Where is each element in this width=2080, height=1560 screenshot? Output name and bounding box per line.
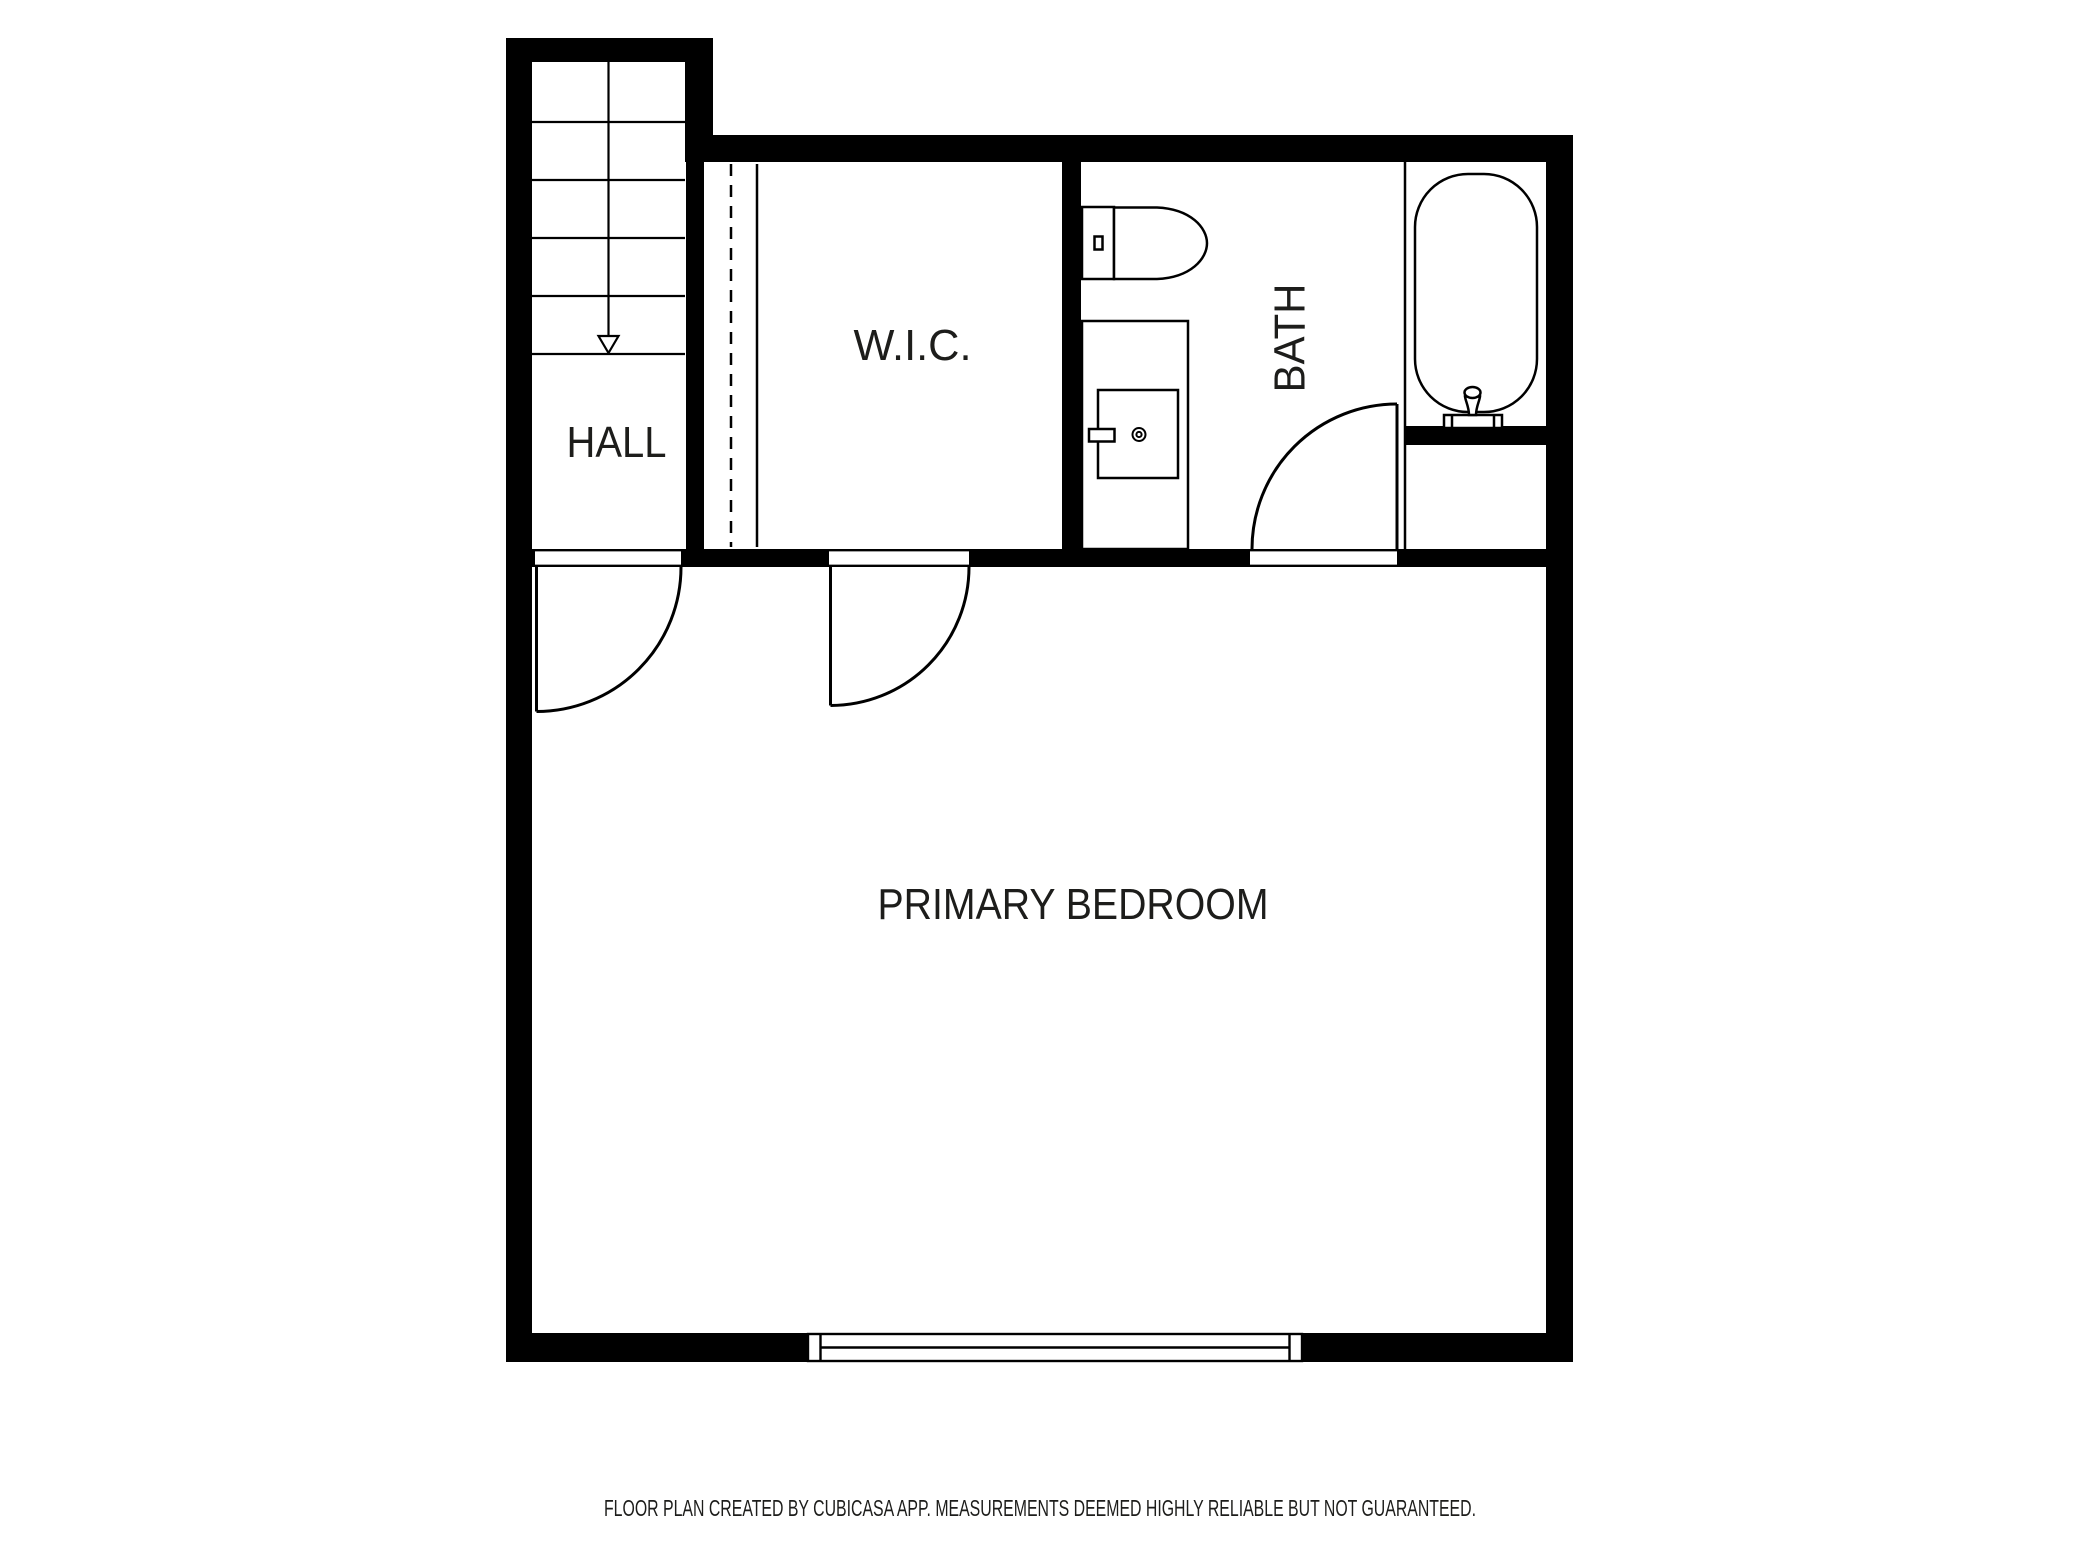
svg-text:PRIMARY BEDROOM: PRIMARY BEDROOM	[878, 880, 1269, 929]
svg-text:HALL: HALL	[567, 418, 667, 467]
svg-text:BATH: BATH	[1266, 284, 1315, 393]
svg-text:FLOOR PLAN CREATED BY CUBICASA: FLOOR PLAN CREATED BY CUBICASA APP. MEAS…	[604, 1495, 1476, 1521]
svg-text:W.I.C.: W.I.C.	[854, 321, 972, 370]
